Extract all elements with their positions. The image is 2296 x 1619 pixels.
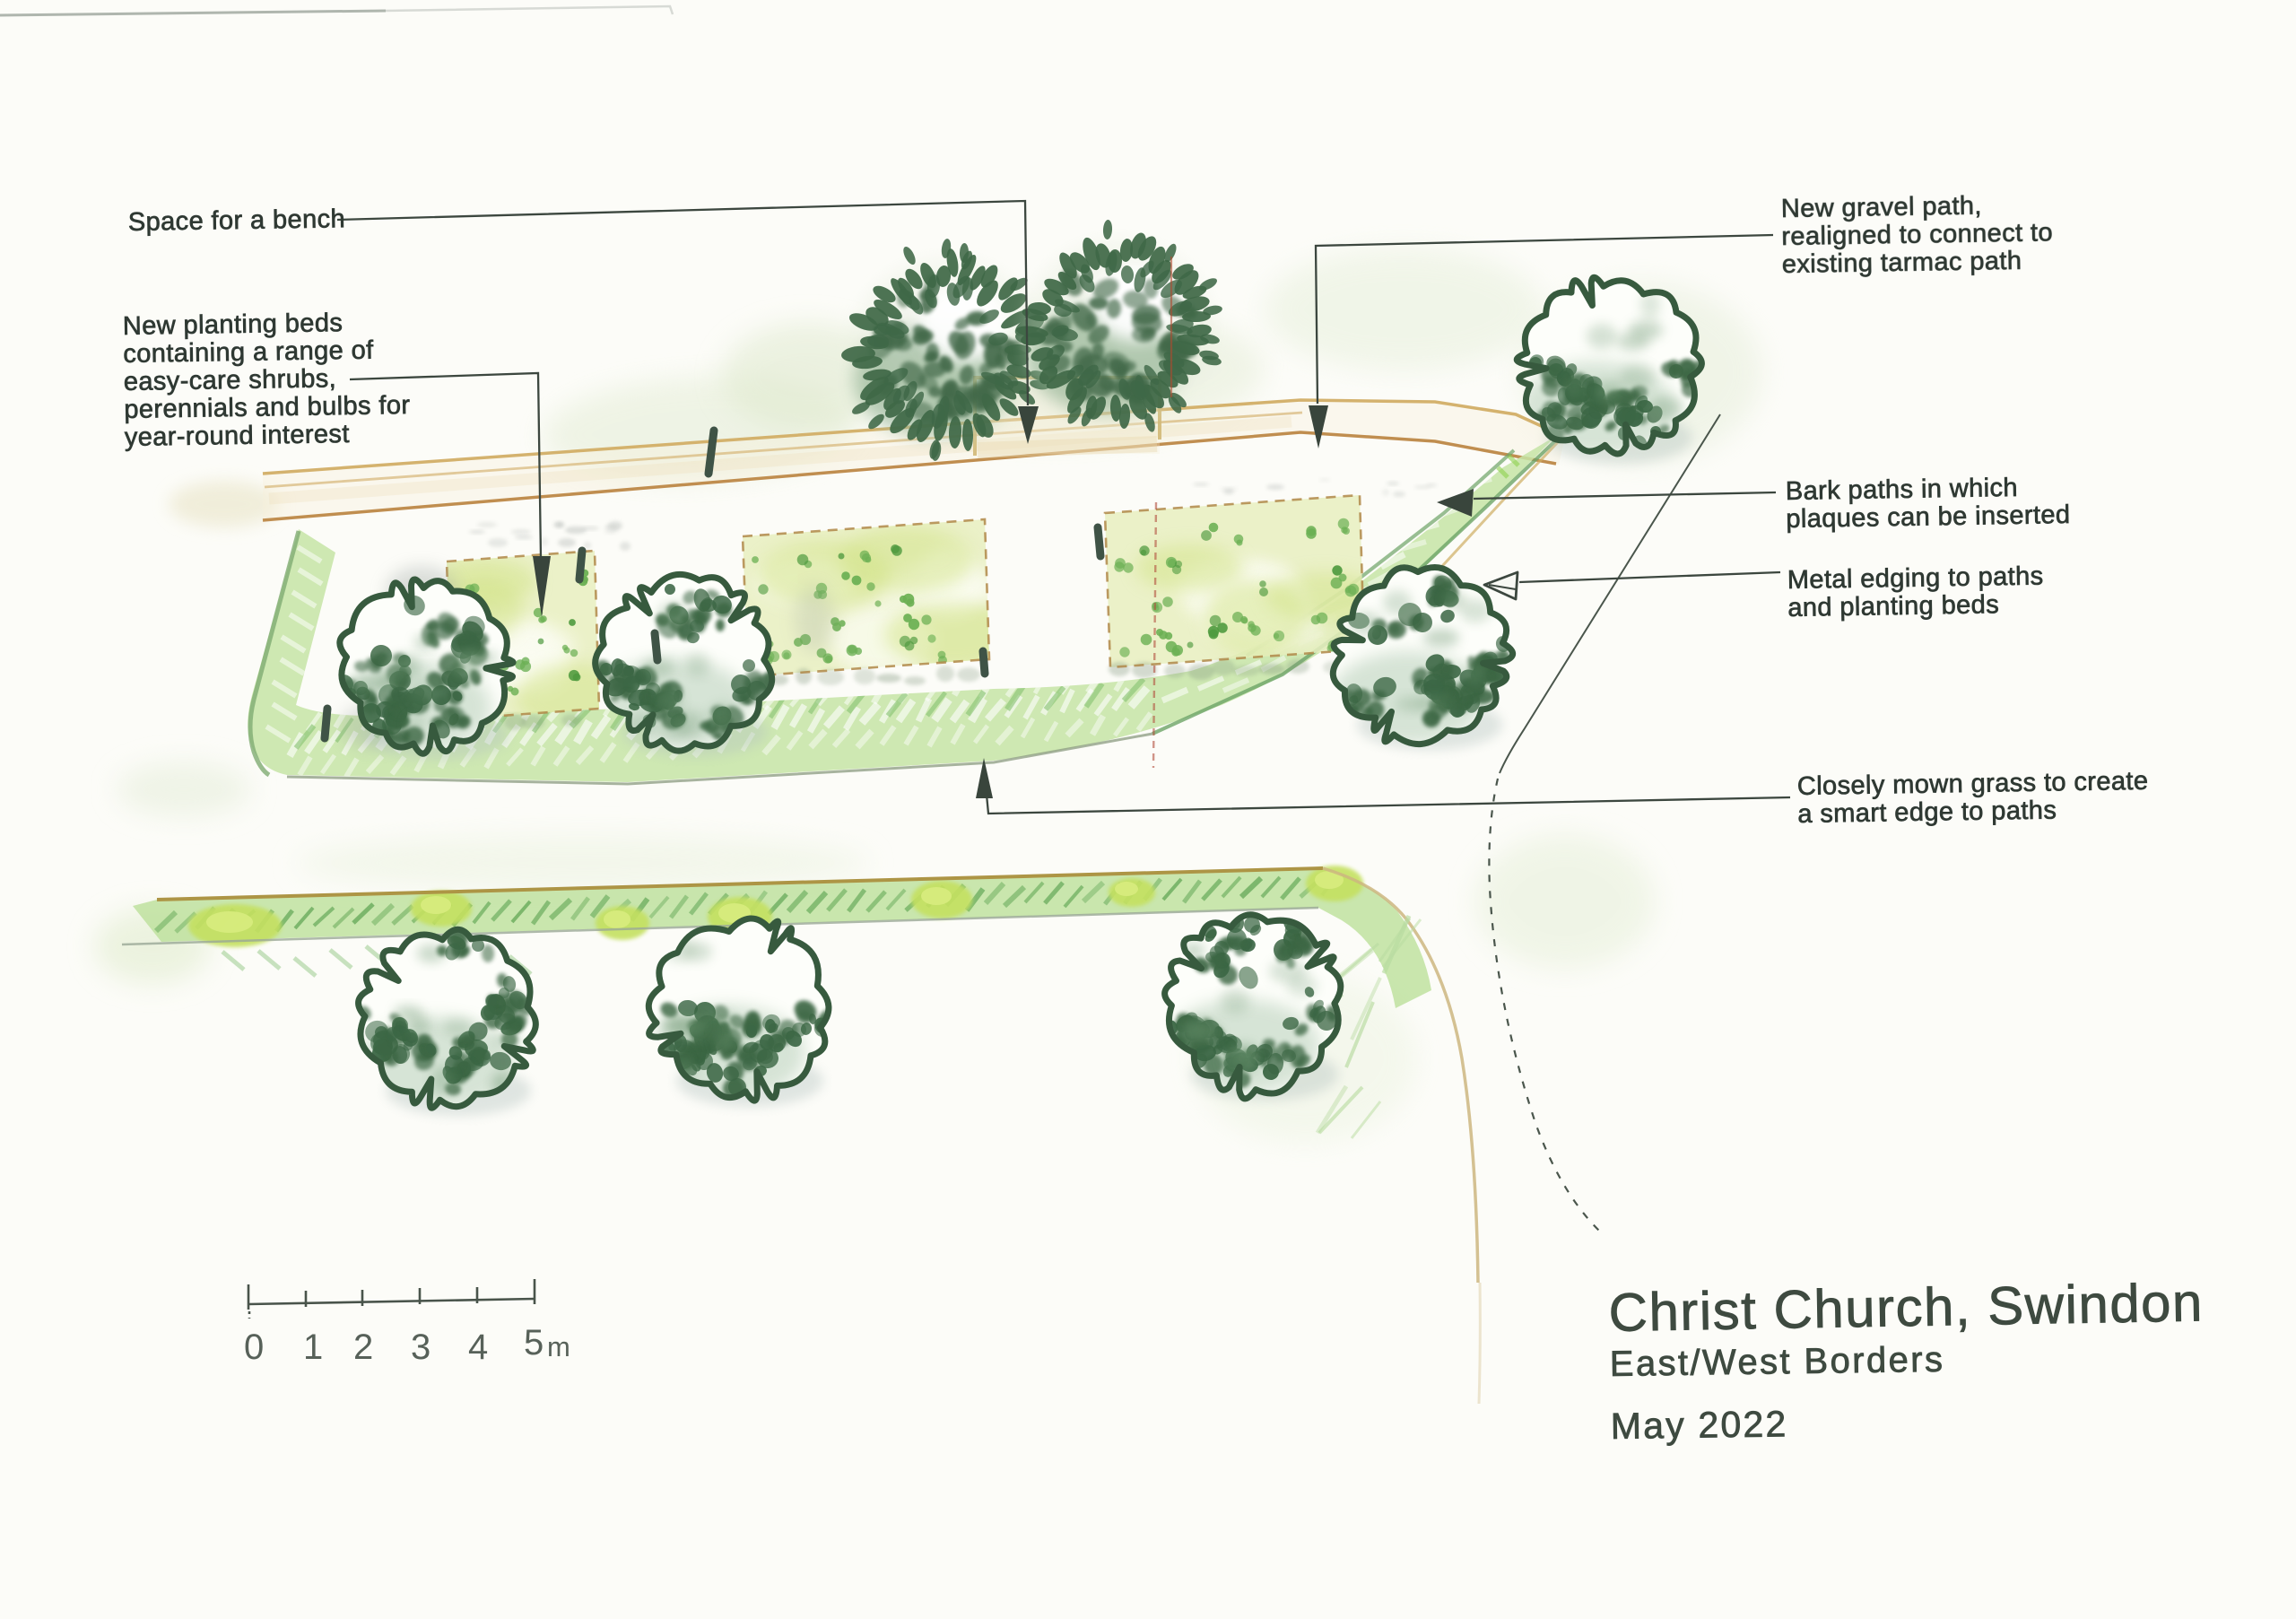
svg-text:m: m [547,1331,570,1362]
svg-text:easy-care shrubs,: easy-care shrubs, [124,364,337,396]
svg-text:Metal edging to paths: Metal edging to paths [1787,562,2044,595]
svg-text:5: 5 [524,1323,544,1362]
svg-text:and planting beds: and planting beds [1787,590,1999,622]
svg-text:containing a range of: containing a range of [123,336,374,369]
svg-text:0: 0 [244,1327,264,1367]
svg-text:perennials and bulbs for: perennials and bulbs for [124,391,411,424]
svg-text:1: 1 [303,1327,323,1367]
svg-text:existing tarmac path: existing tarmac path [1782,247,2022,279]
svg-text:2: 2 [353,1327,373,1367]
svg-text:year-round interest: year-round interest [125,420,350,452]
svg-text:Closely mown grass to create: Closely mown grass to create [1797,767,2149,801]
svg-text:New planting beds: New planting beds [123,309,344,341]
svg-text:4: 4 [468,1327,488,1367]
svg-text:Christ Church, Swindon: Christ Church, Swindon [1608,1272,2204,1343]
svg-text:3: 3 [411,1327,430,1367]
svg-text:a smart edge to paths: a smart edge to paths [1797,796,2057,829]
svg-text:plaques can be inserted: plaques can be inserted [1786,500,2071,534]
svg-text:New gravel path,: New gravel path, [1781,191,1982,223]
svg-text:Space for a bench: Space for a bench [128,205,346,237]
svg-text:East/West Borders: East/West Borders [1610,1340,1945,1384]
svg-text:May 2022: May 2022 [1610,1403,1787,1447]
